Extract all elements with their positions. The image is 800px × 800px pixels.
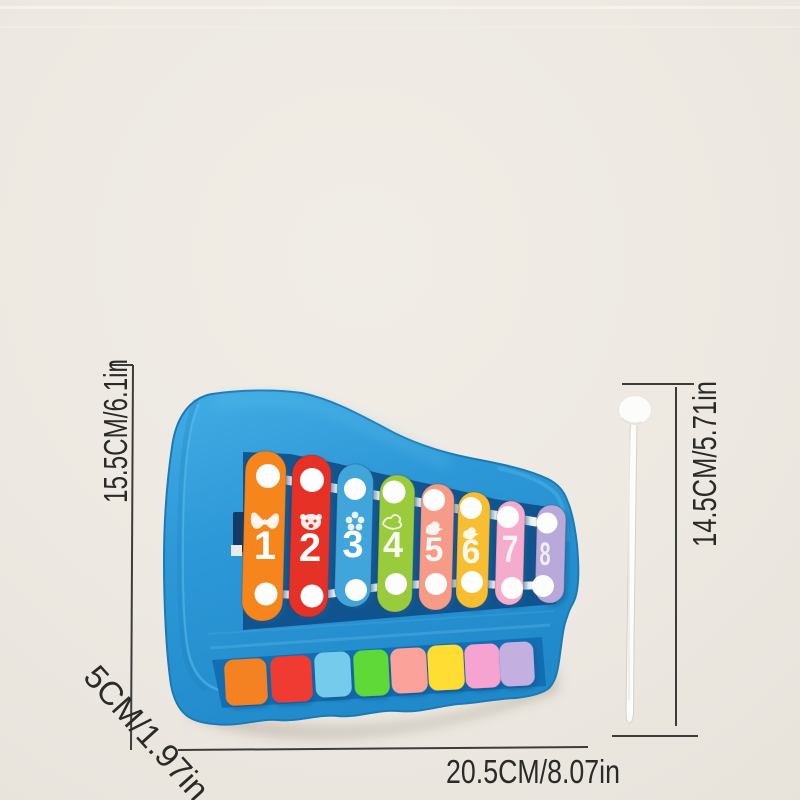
svg-text:5: 5 (425, 531, 444, 569)
svg-text:7: 7 (502, 529, 518, 571)
svg-text:4: 4 (383, 524, 403, 565)
svg-text:15.5CM/6.1in: 15.5CM/6.1in (97, 359, 134, 503)
svg-text:3: 3 (342, 524, 363, 566)
svg-text:2: 2 (299, 526, 321, 570)
svg-text:1: 1 (254, 524, 276, 568)
svg-text:8: 8 (539, 536, 550, 572)
svg-text:14.5CM/5.71in: 14.5CM/5.71in (686, 381, 723, 547)
svg-text:20.5CM/8.07in: 20.5CM/8.07in (446, 753, 620, 790)
svg-text:6: 6 (462, 533, 481, 571)
